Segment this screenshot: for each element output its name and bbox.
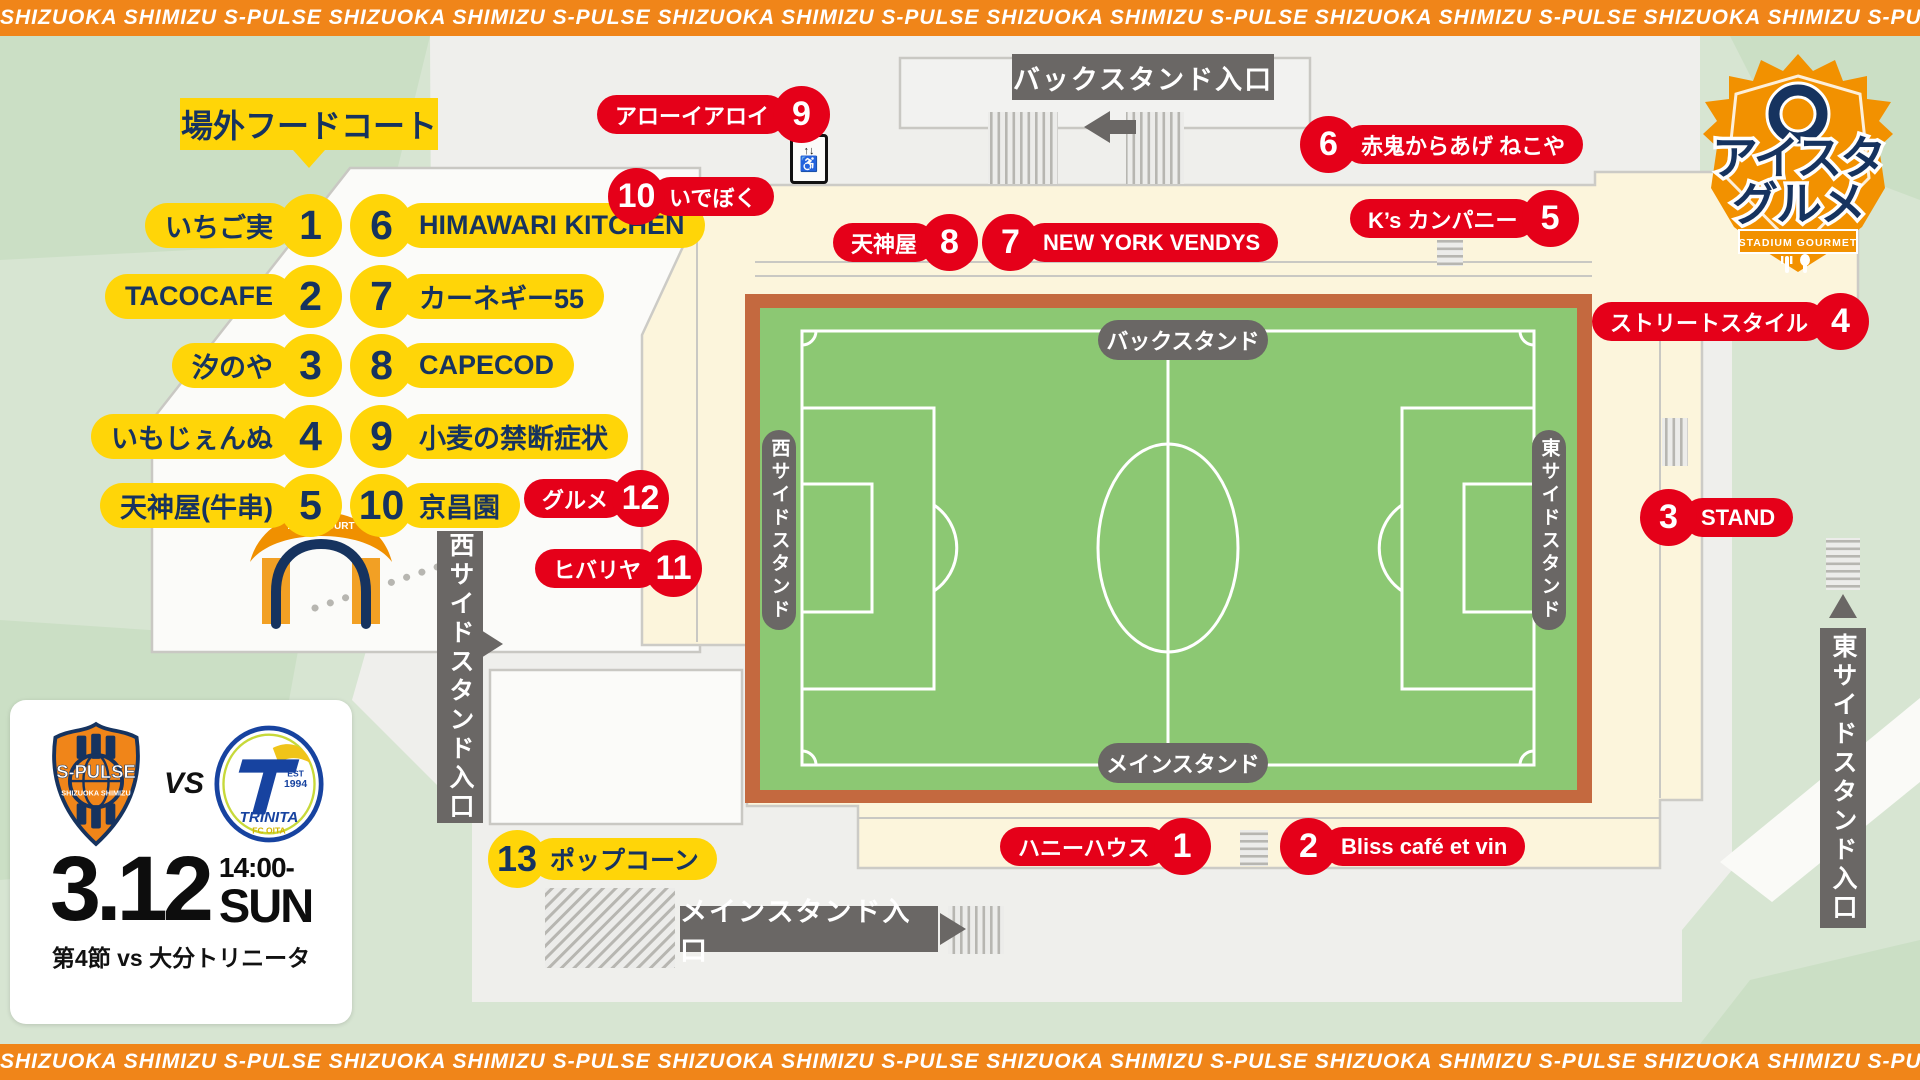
- badge-label: TACOCAFE: [105, 274, 293, 319]
- badge-label: 赤鬼からあげ ねこや: [1343, 125, 1583, 164]
- vs-label: VS: [164, 767, 204, 801]
- map-badge-7: 7NEW YORK VENDYS: [982, 214, 1278, 271]
- logo-ribbon: STADIUM GOURMET: [1739, 237, 1858, 249]
- s-pulse-sub: SHIZUOKA SHIMIZU: [61, 789, 130, 798]
- badge-label: いもじぇんぬ: [91, 414, 293, 459]
- map-badge-11: ヒバリヤ11: [535, 540, 702, 597]
- badge-number: 4: [279, 405, 342, 468]
- trinita-crest: EST 1994 TRINITA FC OITA: [214, 723, 324, 845]
- map-badge-6: 6赤鬼からあげ ねこや: [1300, 116, 1583, 173]
- entrance-label-back: バックスタンド入口: [1012, 54, 1274, 100]
- map-badge-13: 13ポップコーン: [488, 830, 717, 888]
- food-court-item-2: TACOCAFE2: [105, 265, 342, 328]
- logo-line2: グルメ: [1732, 178, 1864, 230]
- badge-label: ヒバリヤ: [535, 549, 659, 588]
- trinita-name: TRINITA: [240, 809, 299, 826]
- map-badge-3: 3STAND: [1640, 489, 1793, 546]
- food-court-item-8: 8CAPECOD: [350, 334, 574, 397]
- map-badge-8: 天神屋8: [833, 214, 978, 271]
- trinita-sub: FC OITA: [252, 825, 285, 835]
- badge-label: いちご実: [145, 203, 293, 248]
- map-badge-9: アローイアロイ9: [597, 86, 830, 143]
- bottom-banner: SHIZUOKA SHIMIZU S-PULSE SHIZUOKA SHIMIZ…: [0, 1044, 1920, 1080]
- badge-label: 小麦の禁断症状: [399, 414, 628, 459]
- wheelchair-icon: ♿: [800, 157, 819, 172]
- food-court-item-10: 10京昌園: [350, 474, 520, 537]
- back-entrance-arrow-icon: [1084, 111, 1110, 143]
- food-court-item-1: いちご実1: [145, 194, 342, 257]
- banner-text: SHIZUOKA SHIMIZU S-PULSE SHIZUOKA SHIMIZ…: [0, 1050, 1920, 1074]
- badge-number: 6: [1300, 116, 1357, 173]
- s-pulse-name: S-PULSE: [56, 761, 136, 782]
- badge-label: STAND: [1683, 498, 1793, 537]
- match-info-card: S-PULSE SHIZUOKA SHIMIZU VS EST 1994 TRI…: [10, 700, 352, 1024]
- badge-label: CAPECOD: [399, 343, 574, 388]
- food-court-column-left: いちご実1TACOCAFE2汐のや3いもじぇんぬ4天神屋(牛串)5: [60, 194, 342, 754]
- badge-number: 4: [1812, 293, 1869, 350]
- badge-number: 5: [279, 474, 342, 537]
- map-badge-1: ハニーハウス1: [1000, 818, 1211, 875]
- match-day: SUN: [219, 884, 312, 929]
- food-court-item-4: いもじぇんぬ4: [91, 405, 342, 468]
- badge-number: 10: [350, 474, 413, 537]
- badge-number: 3: [1640, 489, 1697, 546]
- badge-number: 3: [279, 334, 342, 397]
- badge-label: 天神屋(牛串): [100, 483, 293, 528]
- badge-label: カーネギー55: [399, 274, 604, 319]
- trinita-est-label: EST: [287, 768, 304, 778]
- match-detail: 第4節 vs 大分トリニータ: [10, 939, 352, 973]
- match-date: 3.12: [50, 848, 209, 931]
- banner-text: SHIZUOKA SHIMIZU S-PULSE SHIZUOKA SHIMIZ…: [0, 6, 1920, 30]
- badge-number: 11: [645, 540, 702, 597]
- stand-label-back: バックスタンド: [1098, 320, 1268, 360]
- back-entrance-arrow-bar: [1108, 120, 1136, 134]
- logo-line1: アイスタ: [1712, 132, 1884, 184]
- badge-number: 7: [982, 214, 1039, 271]
- food-court-item-9: 9小麦の禁断症状: [350, 405, 628, 468]
- map-badge-10: 10いでぼく: [608, 168, 774, 225]
- badge-label: グルメ: [524, 479, 626, 518]
- east-entrance-arrow-icon: [1829, 594, 1857, 618]
- badge-number: 1: [1154, 818, 1211, 875]
- badge-number: 2: [1280, 818, 1337, 875]
- badge-label: NEW YORK VENDYS: [1025, 223, 1278, 262]
- badge-label: ストリートスタイル: [1592, 302, 1826, 341]
- badge-label: 天神屋: [833, 223, 935, 262]
- top-banner: SHIZUOKA SHIMIZU S-PULSE SHIZUOKA SHIMIZ…: [0, 0, 1920, 36]
- badge-label: いでぼく: [651, 177, 774, 216]
- stand-label-east: 東サイドスタンド: [1532, 430, 1566, 630]
- s-pulse-crest: S-PULSE SHIZUOKA SHIMIZU: [38, 720, 154, 848]
- badge-number: 7: [350, 265, 413, 328]
- badge-number: 6: [350, 194, 413, 257]
- badge-number: 1: [279, 194, 342, 257]
- map-badge-2: 2Bliss café et vin: [1280, 818, 1525, 875]
- aista-gourmet-logo: アイスタ グルメ STADIUM GOURMET: [1692, 50, 1904, 278]
- match-date-row: 3.12 14:00- SUN: [10, 848, 352, 931]
- badge-label: アローイアロイ: [597, 95, 787, 134]
- badge-label: ハニーハウス: [1000, 827, 1168, 866]
- food-court-item-3: 汐のや3: [172, 334, 342, 397]
- map-badge-12: グルメ12: [524, 470, 669, 527]
- badge-number: 2: [279, 265, 342, 328]
- badge-number: 9: [773, 86, 830, 143]
- badge-number: 13: [488, 830, 546, 888]
- stadium-gourmet-map: FOOD COURT SHIZUOKA SHIMIZU S-PULSE SHIZ…: [0, 0, 1920, 1080]
- food-court-title: 場外フードコート: [180, 98, 438, 150]
- badge-number: 8: [921, 214, 978, 271]
- badge-number: 9: [350, 405, 413, 468]
- badge-number: 10: [608, 168, 665, 225]
- match-logos-row: S-PULSE SHIZUOKA SHIMIZU VS EST 1994 TRI…: [10, 700, 352, 848]
- map-badge-5: K’s カンパニー5: [1350, 190, 1579, 247]
- stand-label-main: メインスタンド: [1098, 743, 1268, 783]
- badge-label: ポップコーン: [532, 838, 717, 880]
- badge-label: 京昌園: [399, 483, 520, 528]
- main-entrance-arrow-icon: [940, 913, 966, 945]
- badge-label: K’s カンパニー: [1350, 199, 1536, 238]
- entrance-label-main: メインスタンド入口: [680, 906, 938, 952]
- food-court-item-7: 7カーネギー55: [350, 265, 604, 328]
- trinita-est-year: 1994: [284, 779, 307, 790]
- badge-label: Bliss café et vin: [1323, 827, 1525, 866]
- badge-number: 8: [350, 334, 413, 397]
- food-court-item-5: 天神屋(牛串)5: [100, 474, 342, 537]
- entrance-label-east: 東サイドスタンド入口: [1820, 628, 1866, 928]
- map-badge-4: ストリートスタイル4: [1592, 293, 1869, 350]
- badge-number: 5: [1522, 190, 1579, 247]
- badge-number: 12: [612, 470, 669, 527]
- badge-label: 汐のや: [172, 343, 293, 388]
